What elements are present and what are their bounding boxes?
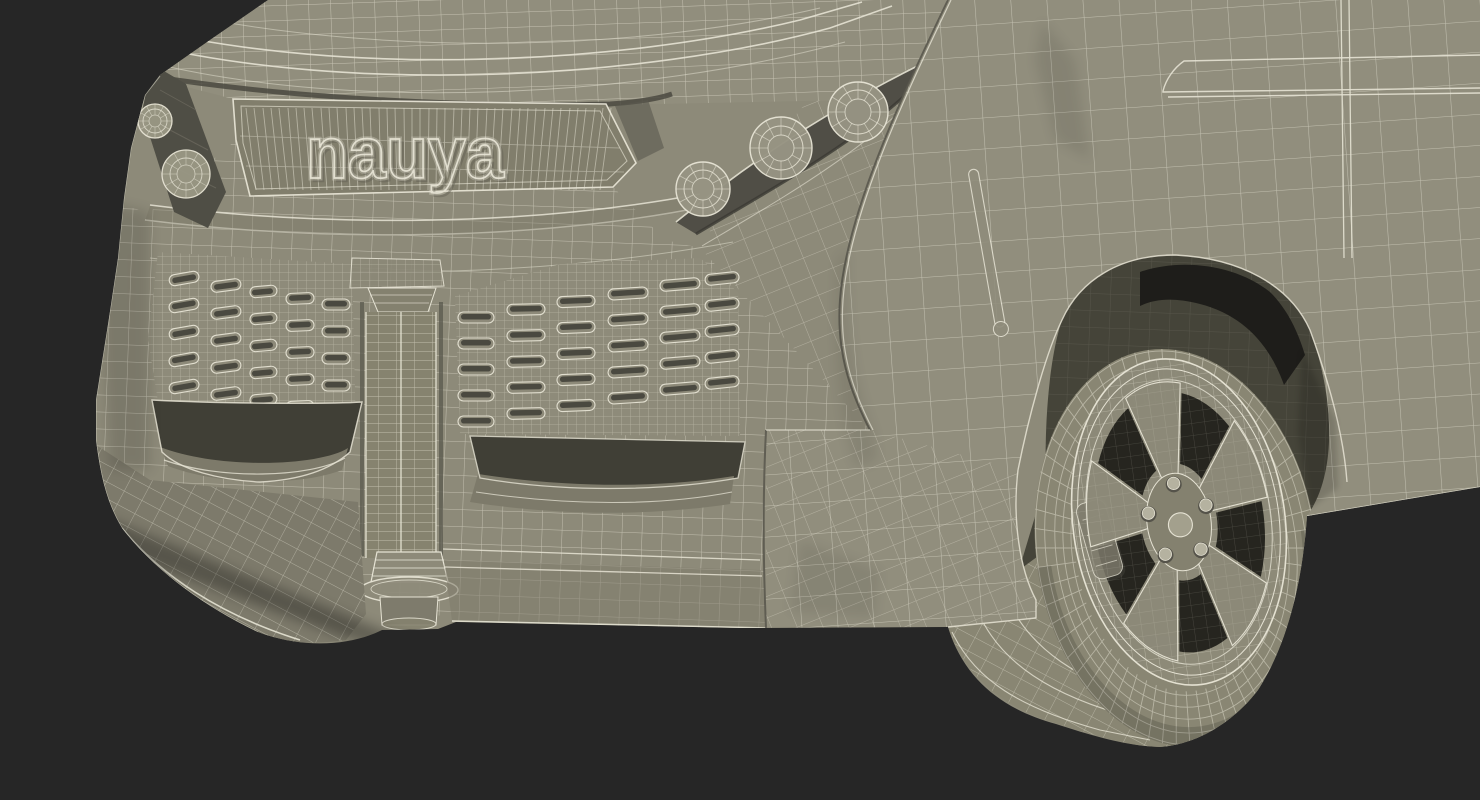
svg-text:nauya: nauya (306, 113, 505, 194)
